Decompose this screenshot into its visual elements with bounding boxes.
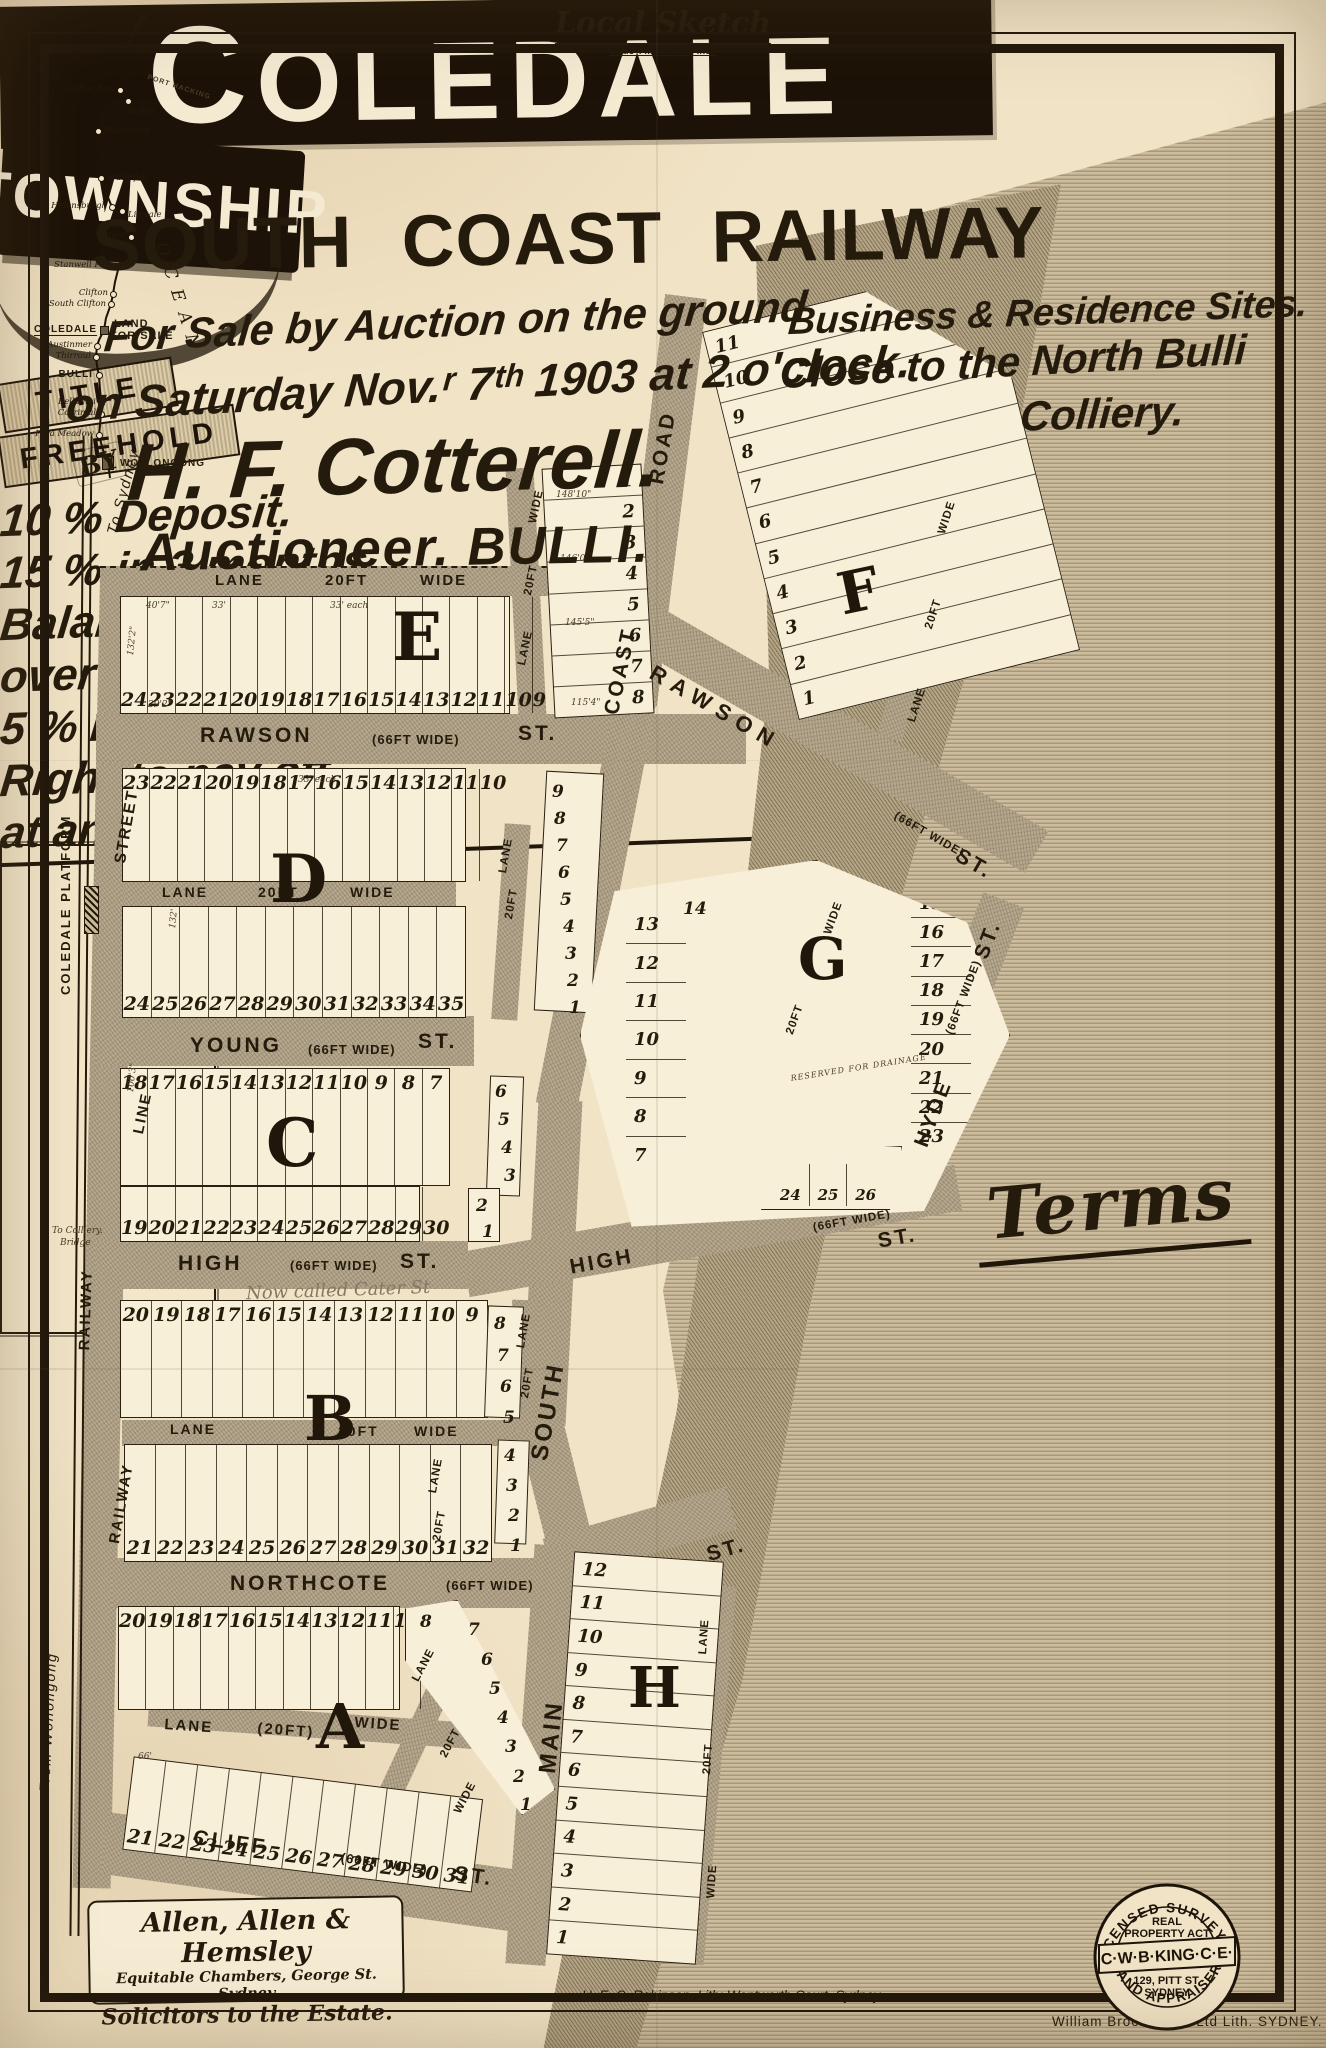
- lot-number: 22: [156, 1445, 187, 1561]
- lot-number: 14: [370, 769, 397, 881]
- street-label-st: ST.: [418, 1030, 457, 1054]
- lot-number: 23: [231, 1187, 258, 1241]
- subtitle: SOUTH COAST RAILWAY: [91, 192, 1012, 288]
- lot-number: 13: [626, 906, 686, 944]
- street-label-66ft: (66FT WIDE): [446, 1578, 534, 1593]
- lot-number: 17: [201, 1607, 228, 1709]
- street-label-lane: LANE: [164, 1716, 214, 1736]
- lot-number: 18: [174, 1607, 201, 1709]
- lot-number: 27: [209, 907, 238, 1017]
- lot-number: 4: [501, 1138, 513, 1158]
- street-label-young: YOUNG: [190, 1034, 282, 1058]
- lot-number: 34: [409, 907, 438, 1017]
- solicitors-role: Solicitors to the Estate.: [91, 1999, 403, 2030]
- dim-label: 145'5": [565, 618, 595, 628]
- lot-number: 20: [205, 769, 232, 881]
- block-H: 121110987654321: [546, 1551, 724, 1964]
- lot-number: 19: [152, 1301, 183, 1417]
- street-label-20ft-p: (20FT): [257, 1720, 315, 1741]
- lot-number: 16: [243, 1301, 274, 1417]
- lot-number: 11: [396, 1301, 427, 1417]
- dim-label: 66': [138, 1752, 152, 1762]
- lot-number: 20: [119, 1607, 146, 1709]
- lot-number: 2: [476, 1196, 488, 1216]
- lot-number: 25: [286, 1187, 313, 1241]
- lot-number: 12: [626, 944, 686, 982]
- solicitors-name: Allen, Allen & Hemsley: [89, 1903, 402, 1970]
- lot-number: 26: [313, 1187, 340, 1241]
- lot-number: 20: [121, 1301, 152, 1417]
- dim-label: 33': [212, 601, 226, 611]
- lot-number: 16: [229, 1607, 256, 1709]
- street-label-lane: LANE: [170, 1421, 216, 1437]
- lot-number: 20: [148, 1187, 175, 1241]
- lot-number: 12: [425, 769, 452, 881]
- street-label-66ft: (66FT WIDE): [372, 732, 460, 747]
- lot-number: 30: [294, 907, 323, 1017]
- block-H-letter: H: [628, 1660, 681, 1716]
- lot-number: 7: [556, 836, 568, 856]
- lot-number: 21: [176, 1187, 203, 1241]
- lot-number: 1: [520, 1795, 532, 1815]
- lot-number: 32: [352, 907, 381, 1017]
- lot-number: 10: [626, 1021, 686, 1059]
- railway-from-wollongong-label: From Wollongong: [36, 1652, 59, 1793]
- lot-number: 17: [213, 1301, 244, 1417]
- lot-number: 11: [478, 597, 505, 713]
- lot-number: 24: [217, 1445, 248, 1561]
- lot-number: 19: [233, 769, 260, 881]
- lot-number: 7: [497, 1346, 509, 1366]
- lithographer-imprint: H. E. C. Robinson. Lith: Wentworth Court…: [582, 1988, 883, 2003]
- lot-number: 8: [494, 1314, 506, 1334]
- lot-number: 18: [286, 597, 313, 713]
- sites-line-3: Colliery.: [1018, 387, 1185, 441]
- lot-number: 22: [150, 769, 177, 881]
- lot-number: 30: [400, 1445, 431, 1561]
- railway-label-1: RAILWAY: [76, 1269, 96, 1351]
- lot-number: 3: [565, 944, 577, 964]
- dim-label: 33' each: [298, 775, 336, 785]
- street-label-wide: WIDE: [350, 884, 395, 900]
- lot-number: 7: [468, 1620, 480, 1640]
- lot-number: 8: [395, 1069, 422, 1185]
- lot-number: 14: [231, 1069, 258, 1185]
- lot-number: 11: [452, 769, 479, 881]
- street-label-lane: LANE: [162, 884, 208, 900]
- block-G-west-lots: 13121110987: [626, 906, 686, 1174]
- lot-number: 8: [554, 809, 566, 829]
- street-label-66ft: (66FT WIDE): [308, 1042, 396, 1057]
- lot-number: 1: [510, 1536, 522, 1556]
- lot-number: 11: [366, 1607, 393, 1709]
- block-B-letter: B: [304, 1388, 356, 1450]
- lot-number: 3: [505, 1737, 517, 1757]
- lot-number: 19: [146, 1607, 173, 1709]
- lot-number: 24: [123, 907, 152, 1017]
- lot-number: 2: [567, 971, 579, 991]
- block-C-bottom: 192021222324252627282930: [120, 1186, 420, 1242]
- lot-number: 8: [420, 1612, 432, 1632]
- bridge-note: Bridge: [60, 1238, 91, 1248]
- lot-number: 17: [148, 1069, 175, 1185]
- lot-number: 9: [552, 782, 564, 802]
- lot-number: 15: [256, 1607, 283, 1709]
- lot-number: 6: [481, 1650, 493, 1670]
- street-label-northcote: NORTHCOTE: [230, 1572, 390, 1596]
- lot-number: 4: [563, 917, 575, 937]
- lot-number: 16: [176, 1069, 203, 1185]
- lot-number: 15: [343, 769, 370, 881]
- lot-number: 5: [560, 890, 572, 910]
- lot-number: 3: [506, 1476, 518, 1496]
- lot-number: 7: [423, 1069, 449, 1185]
- solicitors-scroll: Allen, Allen & Hemsley Equitable Chamber…: [87, 1895, 405, 2004]
- dim-label: 115'4": [571, 698, 601, 708]
- street-label-high: HIGH: [178, 1252, 243, 1276]
- surveyor-stamp: LICENSED SURVEYOR LAND APPRAISER REAL PR…: [1082, 1872, 1252, 2042]
- block-G-letter: G: [798, 930, 848, 988]
- lot-number: 28: [339, 1445, 370, 1561]
- lot-number: 31: [323, 907, 352, 1017]
- block-D-letter: D: [270, 846, 327, 912]
- lot-number: 1: [482, 1222, 494, 1242]
- platform-marker: [84, 886, 99, 934]
- stamp-property-act: PROPERTY ACT: [1124, 1928, 1210, 1940]
- lot-number: 24: [258, 1187, 285, 1241]
- stamp-address-1: 129, PITT ST.: [1133, 1975, 1200, 1987]
- street-label-st: ST.: [400, 1250, 439, 1274]
- lot-number: 24: [772, 1164, 810, 1206]
- lot-number: 2: [508, 1506, 520, 1526]
- street-label-lane: LANE: [697, 1619, 711, 1655]
- lot-number: 5: [503, 1408, 515, 1428]
- lot-number: 18: [182, 1301, 213, 1417]
- lot-number: 11: [626, 983, 686, 1021]
- dim-label: 33' each: [330, 601, 368, 611]
- lot-number: 21: [203, 597, 230, 713]
- lot-number: 28: [368, 1187, 395, 1241]
- dim-label: 40'7": [146, 601, 170, 611]
- block-E-letter: E: [392, 604, 442, 670]
- street-label-wide: WIDE: [414, 1423, 459, 1439]
- lot-number: 12: [366, 1301, 397, 1417]
- to-colliery-note: To Colliery.: [52, 1226, 103, 1236]
- lot-number: 15: [274, 1301, 305, 1417]
- lot-number: 4: [504, 1446, 516, 1466]
- lot-number: 4: [497, 1708, 509, 1728]
- lot-number: 9: [533, 597, 546, 713]
- lot-number: 15: [203, 1069, 230, 1185]
- lot-number: 9: [457, 1301, 487, 1417]
- street-label-rawson: RAWSON: [200, 724, 313, 748]
- block-G-south-lots: 242526: [772, 1164, 884, 1206]
- lot-number: 26: [278, 1445, 309, 1561]
- lot-number: 7: [626, 1137, 686, 1174]
- lot-number: 5: [498, 1110, 510, 1130]
- street-label-20ft: 20FT: [701, 1743, 715, 1775]
- lot-number: 32: [461, 1445, 491, 1561]
- lot-number: 29: [396, 1187, 423, 1241]
- lot-number: 23: [148, 597, 175, 713]
- lot-number: 35: [437, 907, 465, 1017]
- lot-number: 27: [341, 1187, 368, 1241]
- lot-number: 23: [186, 1445, 217, 1561]
- lot-number: 10: [341, 1069, 368, 1185]
- lot-number: 12: [450, 597, 477, 713]
- lot-number: 17: [911, 947, 971, 976]
- lot-number: 21: [178, 769, 205, 881]
- lot-number: 10: [427, 1301, 458, 1417]
- lot-number: 20: [231, 597, 258, 713]
- dim-label: 132': [168, 908, 180, 929]
- lot-number: 7: [552, 651, 651, 687]
- lot-number: 29: [266, 907, 295, 1017]
- lot-number: 26: [180, 907, 209, 1017]
- auctioneer-title: Auctioneer. BULLI.: [140, 514, 651, 584]
- solicitors-address: Equitable Chambers, George St. Sydney: [90, 1965, 403, 2004]
- lot-number: 22: [176, 597, 203, 713]
- lot-number: 16: [341, 597, 368, 713]
- lot-number: 6: [495, 1082, 507, 1102]
- block-E: 2423222120191817161514131211109: [120, 596, 510, 714]
- lot-number: 25: [247, 1445, 278, 1561]
- lot-number: 28: [237, 907, 266, 1017]
- street-label-66ft: (66FT WIDE): [290, 1258, 378, 1273]
- lot-number: 8: [626, 1098, 686, 1136]
- lot-number: 1: [569, 998, 581, 1018]
- lot-number: 29: [370, 1445, 401, 1561]
- dim-label: 29'2": [148, 700, 172, 710]
- lot-number: 14: [683, 899, 707, 919]
- coledale-platform-label: COLEDALE PLATFORM: [58, 815, 73, 995]
- block-C-letter: C: [266, 1110, 319, 1176]
- lot-number: 3: [504, 1166, 516, 1186]
- stamp-real: REAL: [1152, 1916, 1182, 1928]
- lot-number: 6: [500, 1377, 512, 1397]
- lot-number: 9: [368, 1069, 395, 1185]
- block-A-letter: A: [316, 1696, 364, 1758]
- lot-number: 5: [489, 1679, 501, 1699]
- lot-number: 19: [121, 1187, 148, 1241]
- lot-number: 17: [313, 597, 340, 713]
- stamp-address-2: SYDNEY: [1144, 1987, 1190, 1999]
- lot-number: 30: [423, 1187, 449, 1241]
- auction-poster: COLEDALE TOWNSHIP SOUTH COAST RAILWAY Fo…: [0, 0, 1326, 2048]
- lot-number: 2: [513, 1767, 525, 1787]
- auctioneer-name: H. F. Cotterell.: [124, 413, 664, 519]
- street-label-st: ST.: [518, 722, 557, 746]
- lot-number: 16: [911, 918, 971, 947]
- lot-number: 33: [380, 907, 409, 1017]
- lot-number: 13: [398, 769, 425, 881]
- lot-number: 25: [810, 1164, 848, 1206]
- lot-number: 19: [258, 597, 285, 713]
- lot-number: 14: [284, 1607, 311, 1709]
- lot-number: 22: [203, 1187, 230, 1241]
- street-label-wide: WIDE: [705, 1864, 719, 1899]
- lot-number: 6: [558, 863, 570, 883]
- lot-number: 27: [308, 1445, 339, 1561]
- lot-number: 9: [626, 1060, 686, 1098]
- lot-number: 26: [847, 1164, 884, 1206]
